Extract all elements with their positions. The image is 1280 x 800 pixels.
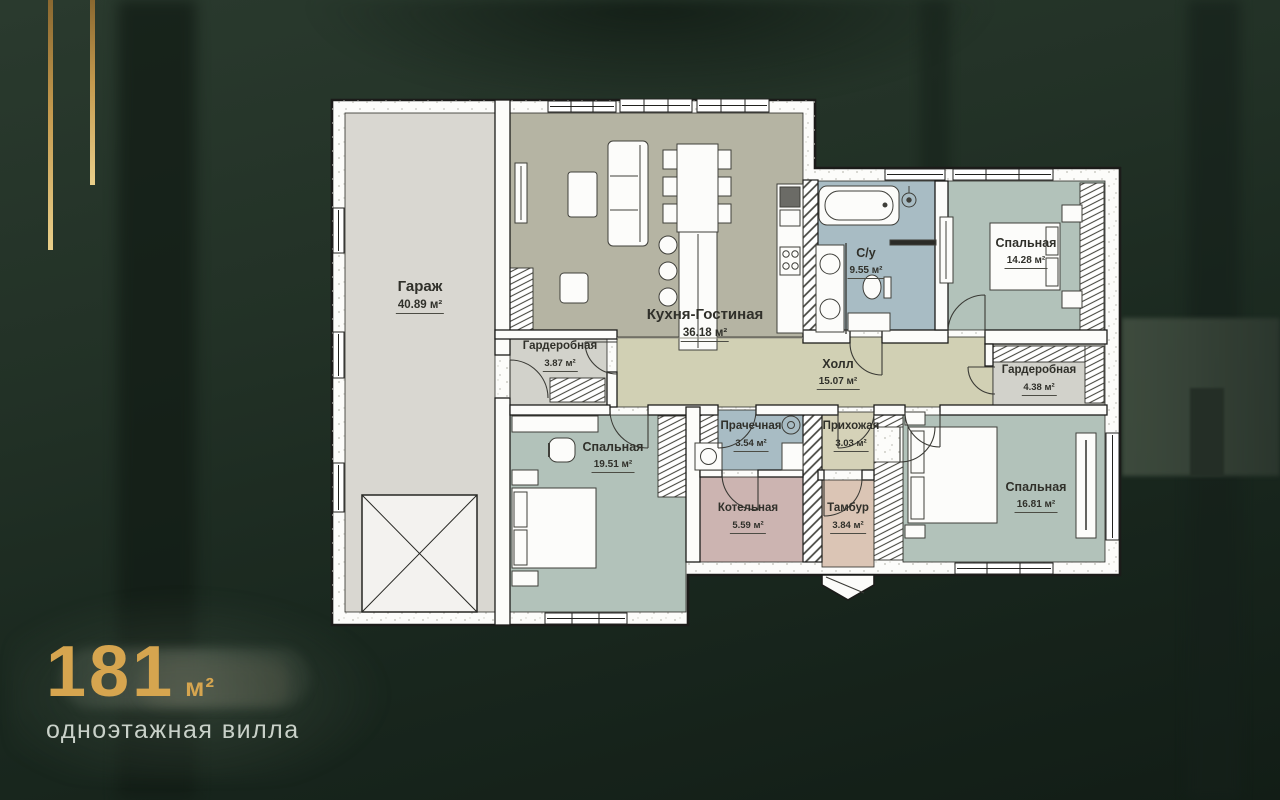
room-label-entry: Прихожая3.03 м² <box>823 420 880 452</box>
room-label-boiler: Котельная5.59 м² <box>718 502 778 534</box>
kitchen-tall-cabinet <box>515 163 527 223</box>
window-bedroom3-right <box>1106 433 1119 540</box>
room-label-kitchen: Кухня-Гостиная36.18 м² <box>647 306 764 342</box>
kitchen-counter-appliances <box>777 184 803 333</box>
window-garage-left-2 <box>333 332 344 378</box>
area-badge: 181м² одноэтажная вилла <box>46 636 300 745</box>
room-label-hall: Холл15.07 м² <box>817 357 860 390</box>
window-bedroom1-top <box>953 169 1053 180</box>
poster-stage: Гараж40.89 м² Кухня-Гостиная36.18 м² С/у… <box>0 0 1280 800</box>
window-garage-left-1 <box>333 208 344 253</box>
room-label-tambour: Тамбур3.84 м² <box>827 502 869 534</box>
room-label-bedroom-2: Спальная19.51 м² <box>583 440 644 473</box>
window-bath-top <box>885 169 945 180</box>
window-top-2 <box>620 99 692 112</box>
room-label-garage: Гараж40.89 м² <box>396 278 444 314</box>
window-top-3 <box>697 99 769 112</box>
room-hall <box>617 337 993 407</box>
bedroom2-chair <box>549 438 575 462</box>
kitchen-armchair <box>560 273 588 303</box>
total-area-unit: м² <box>185 672 215 702</box>
total-area-value: 181 <box>46 632 175 712</box>
room-label-laundry: Прачечная3.54 м² <box>721 420 782 452</box>
bath-sink-counter <box>816 243 846 334</box>
kitchen-sofa <box>608 141 648 246</box>
bedroom3-wardrobe-panel <box>1076 433 1096 538</box>
window-bedroom2-bottom <box>545 613 627 624</box>
window-top-1 <box>548 101 616 112</box>
dryer <box>782 443 803 470</box>
room-label-wardrobe-1: Гардеробная3.87 м² <box>523 340 597 372</box>
window-garage-left-3 <box>333 463 344 512</box>
bedroom1-dresser <box>940 217 953 283</box>
room-label-bedroom-3: Спальная16.81 м² <box>1006 480 1067 513</box>
room-label-bathroom: С/у9.55 м² <box>848 246 885 279</box>
kitchen-coffee-table <box>568 172 597 217</box>
villa-subtitle: одноэтажная вилла <box>46 716 300 745</box>
room-label-wardrobe-2: Гардеробная4.38 м² <box>1002 364 1076 396</box>
bath-cabinet <box>848 313 890 331</box>
bathtub <box>819 186 899 225</box>
dining-table <box>663 144 731 232</box>
garage-gate-mark <box>362 495 477 612</box>
room-kitchen-living <box>510 113 803 338</box>
bedroom2-desk <box>512 416 598 432</box>
window-bedroom3-bottom <box>955 563 1053 574</box>
shower-partition <box>890 240 936 245</box>
room-label-bedroom-1: Спальная14.28 м² <box>996 236 1057 269</box>
bedroom3-bed <box>905 412 997 538</box>
